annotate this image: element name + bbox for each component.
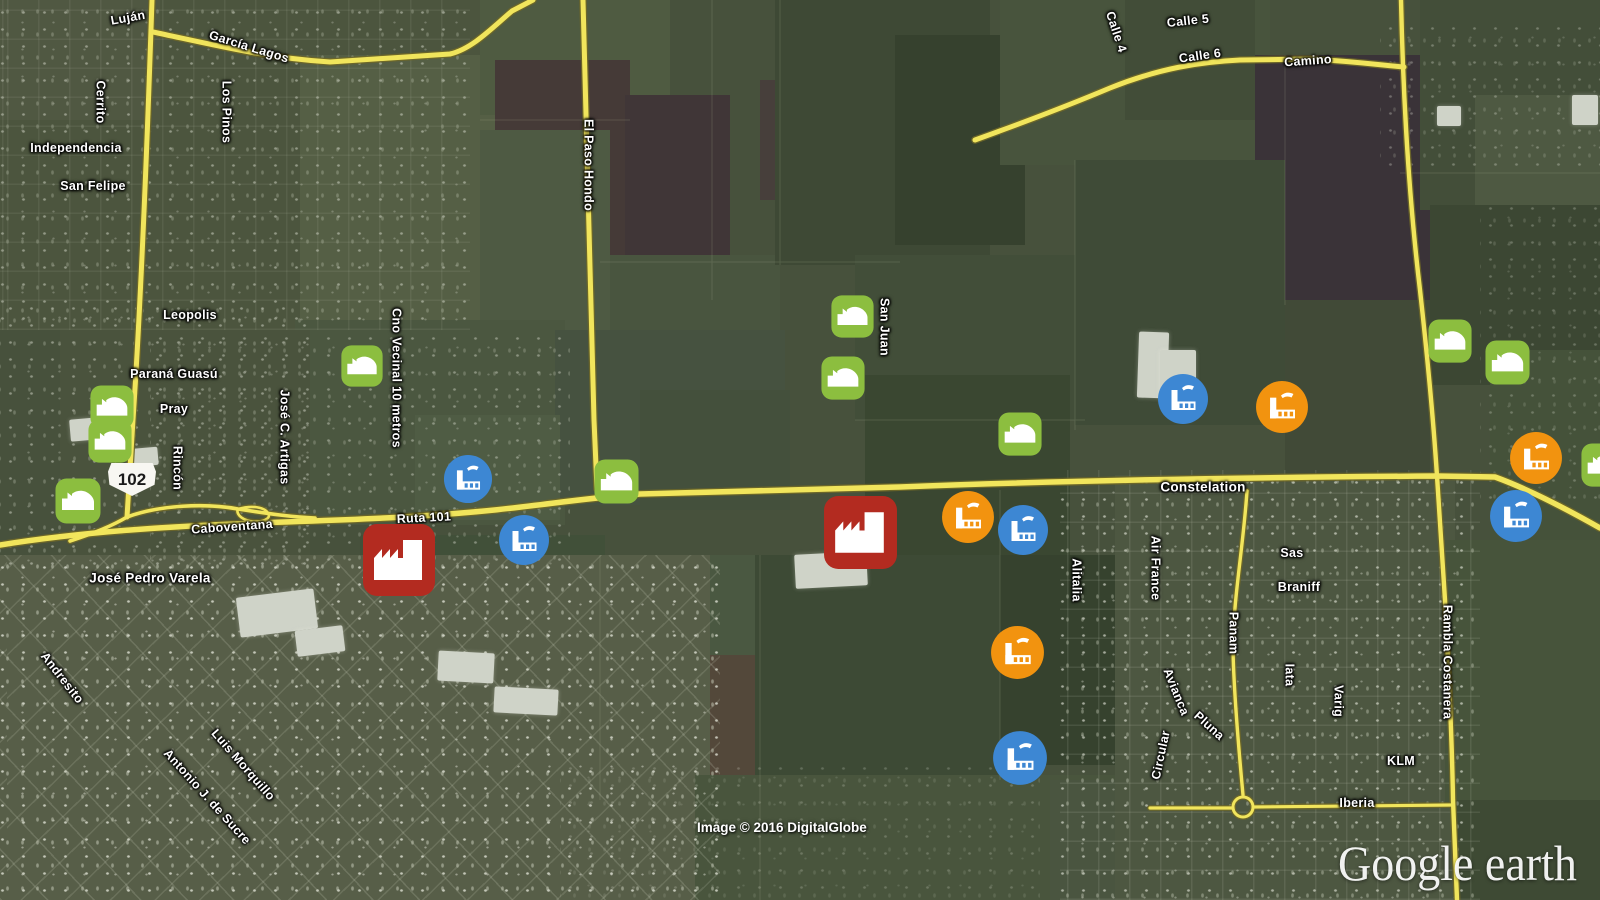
marker-factory-green[interactable] [1580, 442, 1600, 488]
marker-factory-green[interactable] [997, 411, 1043, 457]
marker-factory-blue[interactable] [1157, 373, 1209, 425]
marker-factory-green[interactable] [87, 418, 133, 464]
marker-factory-green[interactable] [593, 458, 640, 505]
marker-factory-blue[interactable] [443, 454, 493, 504]
marker-factory-green[interactable] [1484, 339, 1531, 386]
marker-factory-orange[interactable] [941, 490, 995, 544]
google-earth-watermark: Google earth [1338, 838, 1577, 888]
marker-factory-blue[interactable] [1489, 489, 1543, 543]
marker-factory-blue[interactable] [992, 730, 1048, 786]
imagery-attribution: Image © 2016 DigitalGlobe [697, 820, 867, 835]
marker-factory-green[interactable] [340, 344, 384, 388]
marker-factory-green[interactable] [830, 294, 875, 339]
markers-layer [0, 0, 1600, 900]
marker-factory-red[interactable] [361, 522, 437, 598]
marker-factory-blue[interactable] [997, 504, 1049, 556]
marker-factory-orange[interactable] [1255, 380, 1309, 434]
marker-factory-orange[interactable] [990, 625, 1045, 680]
marker-factory-green[interactable] [54, 477, 102, 525]
marker-factory-green[interactable] [820, 355, 866, 401]
google-earth-map-view[interactable]: 102 LujánGarcía LagosLos PinosCerritoInd… [0, 0, 1600, 900]
marker-factory-blue[interactable] [498, 514, 550, 566]
marker-factory-red[interactable] [822, 494, 899, 571]
marker-factory-orange[interactable] [1509, 431, 1563, 485]
marker-factory-green[interactable] [1427, 318, 1473, 364]
